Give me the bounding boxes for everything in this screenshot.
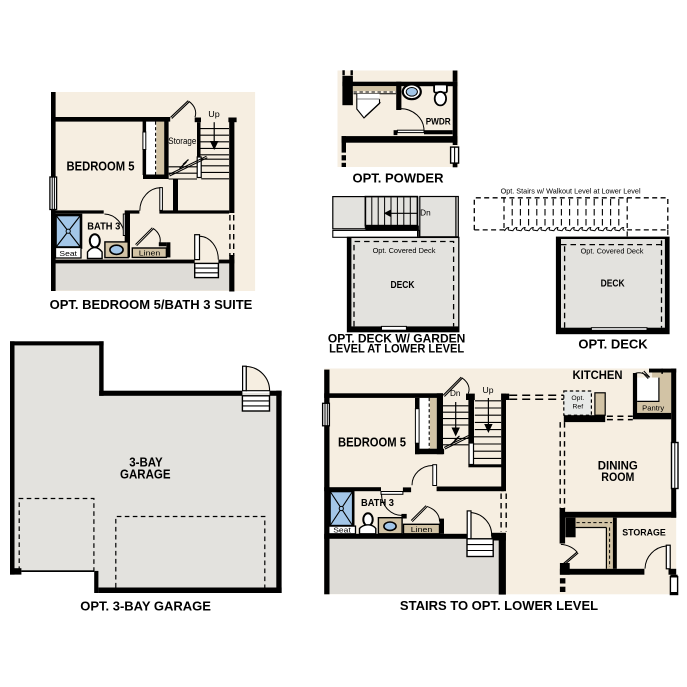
svg-text:STAIRS TO OPT. LOWER LEVEL: STAIRS TO OPT. LOWER LEVEL (400, 598, 598, 613)
svg-text:KITCHEN: KITCHEN (573, 368, 623, 382)
svg-text:PWDR: PWDR (426, 116, 451, 126)
svg-text:Storage: Storage (168, 136, 196, 146)
svg-text:OPT. BEDROOM 5/BATH 3 SUITE: OPT. BEDROOM 5/BATH 3 SUITE (50, 297, 253, 312)
svg-text:Opt. Covered Deck: Opt. Covered Deck (581, 247, 644, 256)
svg-text:Dn: Dn (450, 388, 461, 398)
svg-text:Opt. Covered Deck: Opt. Covered Deck (373, 246, 436, 255)
svg-text:Up: Up (208, 109, 220, 119)
svg-text:GARAGE: GARAGE (120, 468, 171, 482)
svg-text:ROOM: ROOM (601, 470, 634, 484)
svg-text:Seat: Seat (333, 526, 351, 535)
svg-text:Seat: Seat (59, 249, 77, 258)
svg-text:Linen: Linen (411, 525, 433, 534)
svg-text:BATH 3: BATH 3 (361, 498, 394, 509)
svg-text:BEDROOM 5: BEDROOM 5 (338, 435, 406, 450)
svg-text:Ref: Ref (573, 404, 584, 411)
svg-text:LEVEL AT LOWER LEVEL: LEVEL AT LOWER LEVEL (329, 341, 464, 355)
svg-text:Opt. Stairs w/ Walkout Level a: Opt. Stairs w/ Walkout Level at Lower Le… (501, 186, 641, 195)
svg-text:Opt.: Opt. (571, 395, 584, 402)
svg-text:Pantry: Pantry (642, 404, 664, 413)
svg-text:BEDROOM 5: BEDROOM 5 (67, 159, 135, 174)
svg-text:Dn: Dn (420, 207, 431, 217)
svg-text:DECK: DECK (391, 280, 416, 291)
svg-text:OPT. 3-BAY GARAGE: OPT. 3-BAY GARAGE (80, 598, 211, 613)
svg-text:OPT. POWDER: OPT. POWDER (352, 170, 444, 185)
svg-text:STORAGE: STORAGE (622, 528, 666, 539)
svg-text:DECK: DECK (601, 278, 626, 289)
svg-text:Linen: Linen (139, 249, 161, 258)
svg-text:BATH 3: BATH 3 (87, 222, 120, 233)
svg-text:OPT. DECK: OPT. DECK (578, 336, 648, 351)
svg-text:Up: Up (483, 385, 494, 395)
